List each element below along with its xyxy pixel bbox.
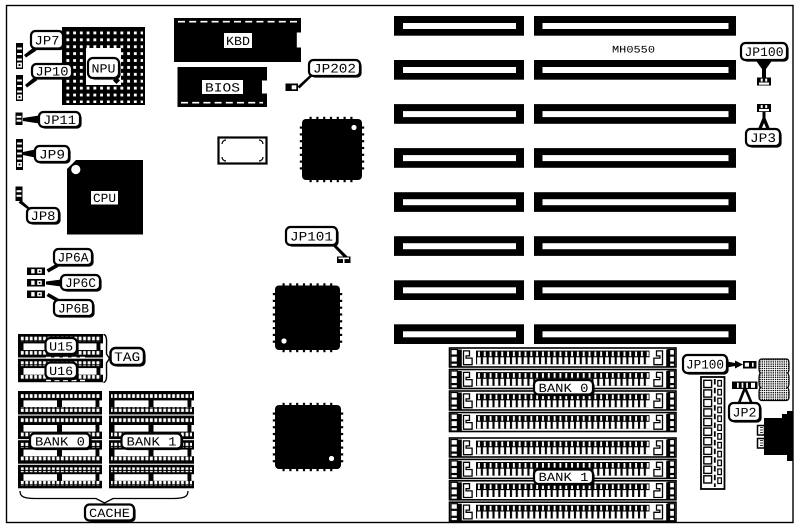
svg-text:JP3: JP3 (750, 131, 776, 146)
svg-text:KBD: KBD (226, 35, 250, 49)
svg-text:BIOS: BIOS (205, 82, 240, 96)
svg-text:JP10: JP10 (36, 65, 69, 80)
svg-text:CPU: CPU (93, 192, 116, 206)
svg-text:CACHE: CACHE (89, 507, 130, 521)
svg-text:JP6B: JP6B (58, 302, 89, 317)
svg-text:JP2: JP2 (733, 406, 757, 421)
svg-text:JP8: JP8 (31, 209, 56, 224)
svg-text:JP6C: JP6C (65, 276, 96, 291)
svg-text:MH0550: MH0550 (612, 46, 655, 57)
svg-text:JP100: JP100 (686, 358, 724, 373)
svg-text:JP6A: JP6A (58, 251, 89, 266)
svg-text:JP101: JP101 (290, 230, 333, 245)
svg-text:BANK 1: BANK 1 (127, 436, 177, 450)
svg-text:NPU: NPU (92, 63, 116, 77)
svg-text:JP11: JP11 (43, 113, 76, 128)
svg-text:BANK 0: BANK 0 (35, 436, 85, 450)
svg-text:U15: U15 (49, 341, 73, 355)
svg-text:U16: U16 (49, 365, 73, 379)
svg-text:JP7: JP7 (35, 33, 60, 48)
svg-text:JP202: JP202 (313, 62, 356, 77)
svg-text:JP9: JP9 (39, 148, 65, 163)
svg-text:JP100: JP100 (745, 45, 784, 60)
svg-text:BANK 0: BANK 0 (539, 382, 589, 396)
svg-text:BANK 1: BANK 1 (539, 471, 589, 485)
svg-text:TAG: TAG (114, 350, 140, 365)
